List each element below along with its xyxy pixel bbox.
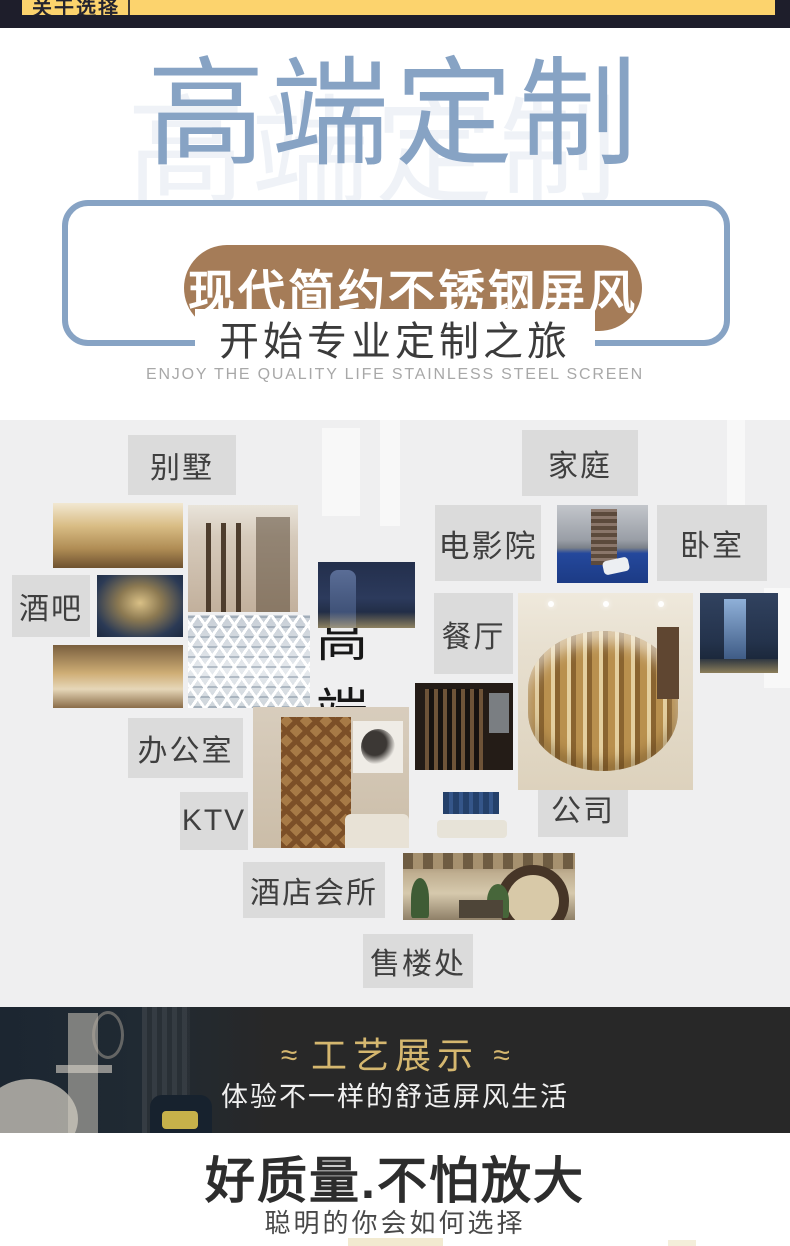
scene-tag-sales-office: 售楼处 [363,934,473,988]
photo-detail [403,853,575,869]
photo-detail [361,729,395,765]
top-nav-bar: 关于选择 [0,0,790,28]
photo-detail [411,878,429,918]
photo-detail [591,509,617,565]
photo-villa-lobby [53,503,183,568]
scene-collage-section: 别墅 家庭 电影院 卧室 酒吧 餐厅 办公室 KTV 酒店会所 公司 售楼处 高… [0,420,790,1007]
hero-subtitle-cn: 开始专业定制之旅 [195,309,595,367]
photo-detail [425,689,483,770]
bg-highlight-strip [727,420,745,512]
nav-tab-divider [128,0,130,15]
photo-detail [489,693,509,733]
photo-detail [353,721,403,773]
scene-tag-hotel-club: 酒店会所 [243,862,385,918]
photo-detail [658,601,664,607]
photo-detail [318,612,415,628]
photo-skyscraper-night [700,593,778,673]
banner-subtitle: 体验不一样的舒适屏风生活 [0,1075,790,1114]
photo-gold-lobby [53,645,183,708]
scene-tag-villa: 别墅 [128,435,236,495]
next-section-peek [348,1238,443,1246]
scene-tag-family: 家庭 [522,430,638,496]
photo-detail [437,820,507,838]
hero-subtitle-wrap: 开始专业定制之旅 [0,309,790,367]
photo-detail [188,615,310,708]
nav-tab-about-selection[interactable]: 关于选择 [22,0,775,15]
photo-detail [724,599,746,659]
scene-tag-cinema: 电影院 [435,505,541,581]
collage-center-word: 高端 [316,642,416,700]
photo-slat-screen-room [188,505,298,612]
photo-ballroom [97,575,183,637]
photo-night-towers [318,562,415,628]
photo-blue-sofa-room [557,505,648,583]
scene-tag-ktv: KTV [180,792,248,850]
photo-detail [443,792,499,814]
photo-dark-metal-screen [415,683,513,770]
hero-subtitle-en: ENJOY THE QUALITY LIFE STAINLESS STEEL S… [0,366,790,384]
photo-detail [256,517,290,612]
quality-subtitle: 聪明的你会如何选择 [0,1203,790,1240]
hero-section: 高端定制 高端定制 现代简约不锈钢屏风 开始专业定制之旅 ENJOY THE Q… [0,28,790,420]
bg-highlight-strip [322,428,360,516]
photo-detail [459,900,503,918]
photo-detail [281,717,351,848]
photo-bedroom [415,778,533,842]
photo-detail [206,523,251,612]
photo-detail [657,627,679,699]
flourish-right-icon: ≈ [479,1039,523,1072]
scene-tag-office: 办公室 [128,718,243,778]
scene-tag-bedroom: 卧室 [657,505,767,581]
scene-tag-bar: 酒吧 [12,575,90,637]
craft-banner-section: ≈工艺展示≈ 体验不一样的舒适屏风生活 [0,1007,790,1133]
photo-lattice-structure [188,615,310,708]
photo-detail [345,814,409,848]
hero-title: 高端定制 [0,54,790,178]
photo-detail [528,631,678,771]
scene-tag-restaurant: 餐厅 [434,593,513,674]
nav-tab-label: 关于选择 [32,0,120,15]
banner-title: 工艺展示 [311,1035,479,1076]
next-section-peek [668,1240,696,1246]
photo-detail [700,659,778,673]
product-detail-page: 关于选择 高端定制 高端定制 现代简约不锈钢屏风 开始专业定制之旅 ENJOY … [0,0,790,1246]
flourish-left-icon: ≈ [267,1039,311,1072]
bg-highlight-strip [380,420,400,526]
quality-section: 好质量.不怕放大 聪明的你会如何选择 [0,1133,790,1246]
photo-moon-gate-lobby [403,853,575,920]
photo-wood-lattice-room [253,707,409,848]
photo-detail [603,601,609,607]
photo-gold-circular-screen [518,593,693,790]
banner-title-row: ≈工艺展示≈ [0,1027,790,1079]
photo-detail [548,601,554,607]
